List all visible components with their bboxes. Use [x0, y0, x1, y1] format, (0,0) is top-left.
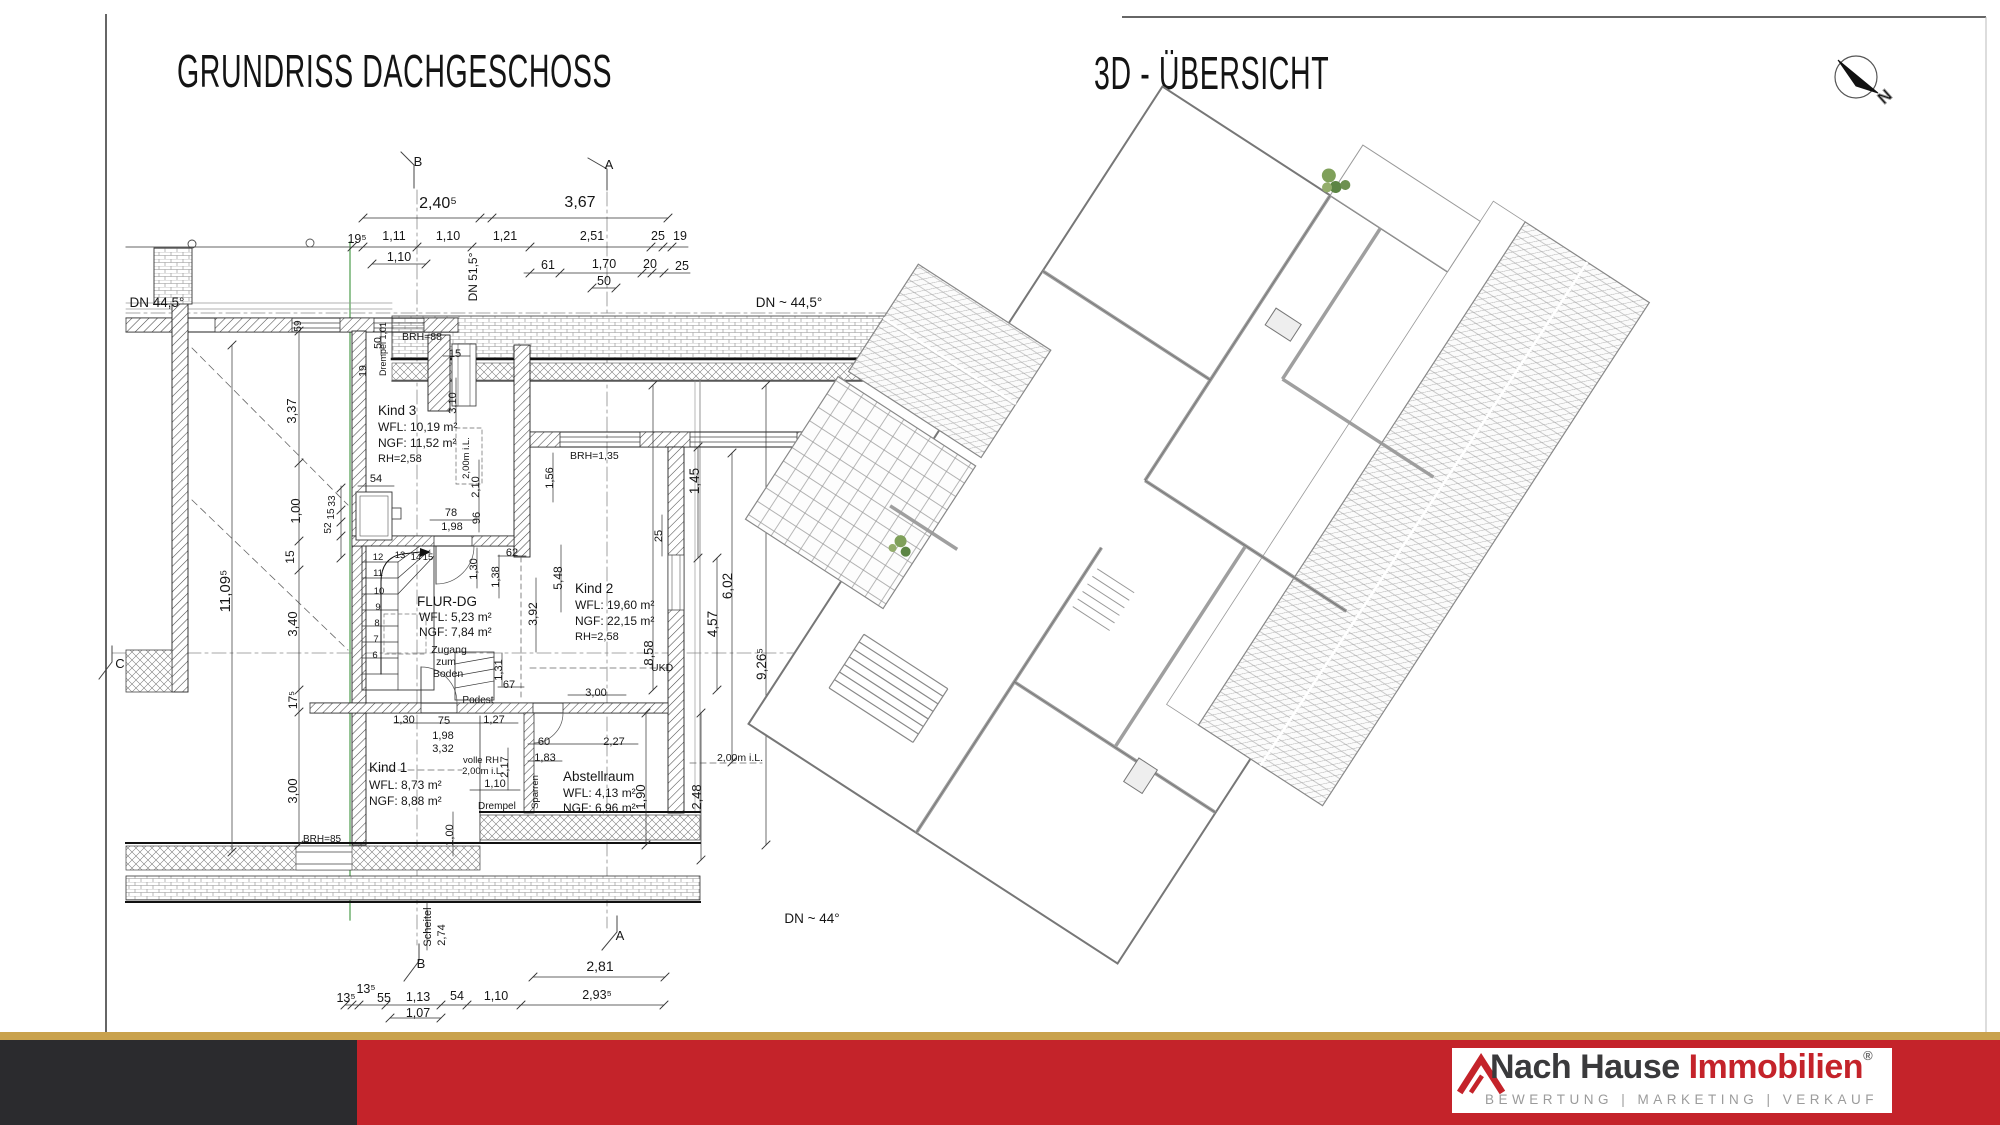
plan-dim-label: UKD [651, 662, 674, 674]
room-name: Kind 2 [575, 581, 613, 596]
plan-dim-label: 2,48 [689, 784, 704, 809]
plan-dim-label: 50 [597, 274, 611, 288]
architectural-drawing: 2,40⁵3,6719⁵1,111,101,212,5125191,10611,… [0, 0, 2000, 1125]
plan-dim-label: 1,07 [406, 1006, 430, 1020]
plan-dim-label: BRH=1,35 [570, 450, 619, 462]
room-area: WFL: 8,73 m² [369, 778, 442, 792]
plan-dim-label: 1,11 [382, 229, 405, 243]
north-compass-icon: N [1835, 56, 1896, 108]
plan-dim-label: Zugang [431, 644, 467, 656]
plan-dim-label: 3,40 [285, 611, 300, 636]
plan-dim-label: 1,30 [468, 558, 480, 579]
brand-name-part1: Nach Hause [1490, 1048, 1689, 1086]
plan-dim-label: 78 [445, 507, 457, 519]
room-name: Abstellraum [563, 769, 634, 784]
room-name: Kind 3 [378, 403, 416, 418]
room-name: Kind 1 [369, 760, 407, 775]
plan-dim-label: 61 [541, 258, 555, 272]
plan-dim-label: Podest [462, 695, 493, 706]
plan-dim-label: 15 [449, 348, 461, 360]
plan-dim-label: 2,27 [603, 736, 624, 748]
plan-dim-label: 60 [538, 736, 550, 748]
room-area: NGF: 6,96 m² [563, 801, 636, 815]
section-marker-b-bottom: B [417, 956, 426, 971]
room-height: RH=2,58 [575, 631, 619, 643]
plan-dim-label: 33 [327, 495, 338, 507]
room-area: NGF: 7,84 m² [419, 625, 492, 639]
plan-dim-label: 2,74 [436, 924, 448, 945]
plan-dim-label: 2,40⁵ [419, 195, 457, 212]
section-marker-a-bottom: A [616, 928, 625, 943]
plan-dim-label: 19 [357, 365, 369, 377]
real-estate-floorplan-page: GRUNDRISS DACHGESCHOSS 3D - ÜBERSICHT [0, 0, 2000, 1125]
roof-pitch-label: DN 44,5° [130, 295, 185, 310]
plan-dim-label: 25 [651, 229, 665, 243]
plan-dim-label: 54 [370, 473, 382, 485]
room-area: WFL: 19,60 m² [575, 598, 654, 612]
plan-dim-label: 1,13 [406, 990, 430, 1004]
room-area: WFL: 4,13 m² [563, 786, 636, 800]
stair-step-number: 6 [372, 650, 377, 661]
plan-dim-label: 54 [450, 989, 464, 1003]
plan-dim-label: 1,10 [436, 229, 460, 243]
plan-dim-label: volle RH [463, 755, 499, 766]
plan-dim-label: 55 [377, 991, 391, 1005]
plan-dim-label: 1,00 [444, 824, 456, 845]
stair-step-number: 10 [374, 586, 385, 597]
brand-tagline: BEWERTUNG | MARKETING | VERKAUF [1485, 1092, 1878, 1107]
plan-dim-label: 1,10 [387, 250, 411, 264]
plan-dim-label: 2,93⁵ [582, 988, 612, 1002]
plan-dim-label: Drempel 1,01 [378, 322, 388, 376]
plan-dim-label: 2,00m i.L. [462, 766, 504, 777]
plan-dim-label: 75 [438, 715, 450, 727]
plan-dim-label: 1,56 [544, 467, 556, 488]
stair-step-number: 15 [423, 552, 434, 563]
stair-step-number: 9 [375, 602, 380, 613]
plan-dim-label: Scheitel [422, 907, 434, 946]
plan-dim-label: 1,70 [592, 257, 616, 271]
section-marker-c-left: C [115, 656, 124, 671]
plan-dim-label: 1,00 [288, 498, 303, 523]
plan-dim-label: 59 [293, 320, 304, 332]
plan-dim-label: 15 [283, 550, 297, 564]
plan-dim-label: 52 [323, 522, 334, 534]
section-marker-a-top: A [605, 157, 614, 172]
plan-dim-label: 3,00 [585, 687, 606, 699]
room-area: NGF: 8,88 m² [369, 794, 442, 808]
plan-dim-label: 2,10 [470, 476, 482, 497]
floor-plan: 2,40⁵3,6719⁵1,111,101,212,5125191,10611,… [99, 152, 935, 1022]
plan-dim-label: 5,48 [551, 566, 565, 590]
plan-dim-label: 25 [653, 530, 665, 542]
plan-dim-label: 2,00m i.L. [717, 752, 763, 764]
brand-name-part2: Immobilien [1689, 1048, 1863, 1086]
plan-dim-label: Sparren [530, 775, 541, 809]
plan-dim-label: 25 [675, 259, 689, 273]
plan-dim-label: 11,09⁵ [217, 570, 234, 613]
plan-dim-label: 17⁵ [286, 691, 300, 709]
plan-dim-label: Drempel [478, 801, 516, 812]
plan-dim-label: 1,10 [484, 778, 505, 790]
plan-dim-label: 3,32 [432, 743, 453, 755]
plan-dim-label: 1,27 [483, 714, 504, 726]
stair-step-number: 7 [373, 634, 378, 645]
plan-dim-label: 3,92 [526, 602, 540, 626]
plan-dim-label: 19⁵ [347, 232, 366, 246]
overview-3d [653, 0, 1649, 1010]
plan-dim-label: 2,51 [580, 229, 604, 243]
plan-dim-label: zum [436, 656, 456, 668]
stair-step-number: 13 [395, 550, 406, 561]
plan-dim-label: 1,31 [493, 659, 505, 680]
roof-pitch-label: DN ~ 44° [784, 911, 839, 926]
plan-dim-label: BRH=88 [402, 331, 442, 343]
plan-dim-label: 1,10 [484, 989, 508, 1003]
brand-name: Nach Hause Immobilien® [1490, 1048, 1873, 1087]
plan-dim-label: 1,21 [493, 229, 517, 243]
plan-dim-label: 1,38 [490, 566, 502, 587]
plan-dim-label: 6,02 [720, 573, 735, 599]
plan-dim-label: 9,26⁵ [754, 648, 769, 680]
room-area: WFL: 5,23 m² [419, 610, 492, 624]
footer-gold-bar [0, 1032, 2000, 1040]
footer-dark-block [0, 1040, 357, 1125]
room-area: NGF: 22,15 m² [575, 614, 654, 628]
plan-dim-label: 3,37 [284, 398, 299, 423]
stair-step-number: 12 [373, 552, 384, 563]
room-name: FLUR-DG [417, 594, 477, 609]
plan-dim-label: 2,81 [586, 958, 613, 974]
plan-dim-label: 13⁵ [356, 982, 375, 996]
roof-pitch-label: DN ~ 44,5° [756, 295, 823, 310]
room-height: RH=2,58 [378, 453, 422, 465]
plan-dim-label: Boden [433, 668, 464, 680]
plan-dim-label: 1,30 [393, 714, 414, 726]
roof-pitch-label: DN 51,5° [466, 252, 480, 301]
plan-dim-label: 2,17 [499, 756, 511, 777]
stair-step-number: 14 [411, 552, 422, 563]
plan-dim-label: 3,67 [564, 194, 595, 211]
section-marker-b-top: B [414, 154, 423, 169]
stair-step-number: 11 [373, 568, 383, 579]
plan-dim-label: 67 [503, 679, 515, 691]
plan-dim-label: 4,57 [705, 611, 720, 637]
plan-dim-label: 1,98 [441, 521, 462, 533]
plan-dim-label: 3,00 [285, 778, 300, 803]
plan-dim-label: 20 [643, 257, 657, 271]
company-logo: Nach Hause Immobilien® BEWERTUNG | MARKE… [1452, 1048, 1892, 1113]
plan-dim-label: 1,98 [432, 730, 453, 742]
stair-step-number: 8 [374, 618, 379, 629]
plan-dim-label: 19 [673, 229, 687, 243]
plan-dim-label: BRH=85 [303, 834, 342, 845]
plan-dim-label: 1,45 [687, 468, 702, 494]
plan-dim-label: 13⁵ [336, 991, 355, 1005]
registered-mark: ® [1863, 1048, 1873, 1063]
plan-dim-label: 15 [326, 508, 337, 520]
plan-dim-label: 1,83 [534, 752, 555, 764]
plan-dim-label: 62 [506, 547, 518, 559]
plan-dim-label: 96 [471, 512, 483, 524]
room-area: NGF: 11,52 m² [378, 436, 456, 450]
compass-north-label: N [1874, 86, 1896, 108]
room-area: WFL: 10,19 m² [378, 420, 457, 434]
wall-bottom-bands [126, 812, 700, 902]
plan-dim-label: 3,10 [447, 392, 459, 413]
plan-dim-label: 2,00m i.L. [461, 437, 472, 479]
